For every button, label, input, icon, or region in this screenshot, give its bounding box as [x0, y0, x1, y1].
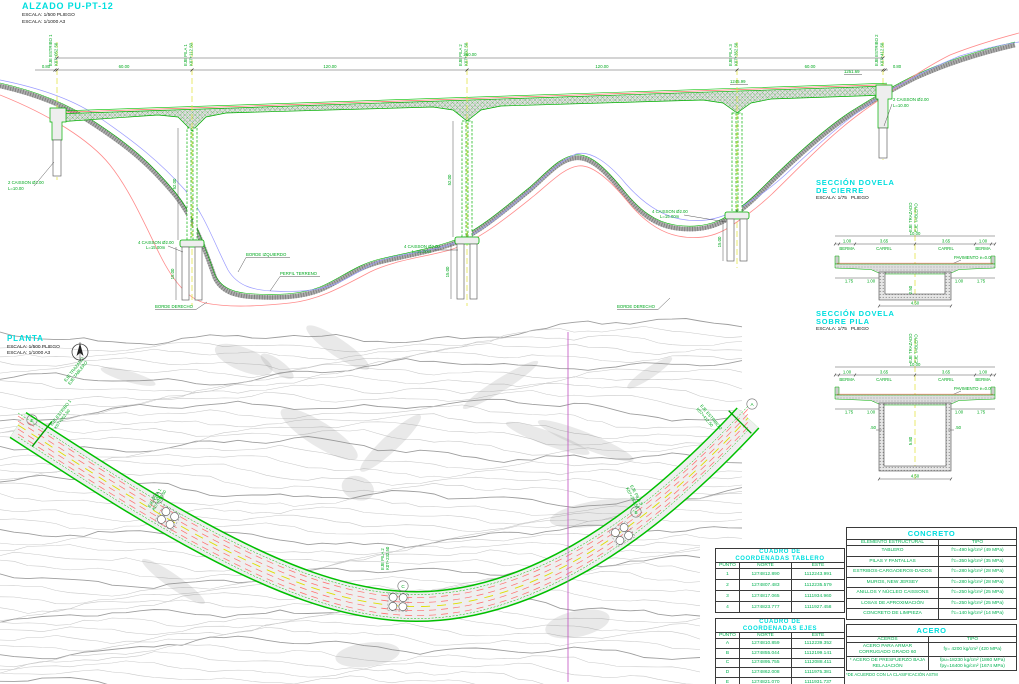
- section-pila-scale: ESCALA: 1/75 PLIEGO: [816, 327, 869, 333]
- table-cell: 1111934.960: [792, 591, 845, 602]
- eje-tablero-label: EJE TABLERO: [914, 203, 919, 232]
- elevation-scale-1: ESCALA: 1/500 PLIEGO: [22, 13, 75, 19]
- borde-derecho-label: BORDE DERECHO: [617, 304, 656, 309]
- dim-label: 4.50: [911, 474, 920, 479]
- north-arrow-icon: [72, 342, 88, 362]
- table-cell: 2: [716, 580, 740, 591]
- concreto-table: CONCRETO ELEMENTO ESTRUCTURAL TIPO TABLE…: [846, 527, 1017, 620]
- acero-footnote: *DE ACUERDO CON LA CLASIFICACIÓN ASTM: [846, 672, 938, 677]
- table-cell: CONCRETO DE LIMPIEZA: [847, 609, 939, 620]
- perfil-terreno-label: PERFIL TERRENO: [280, 271, 318, 276]
- pavimento-label: PAVIMENTO e=0.05: [954, 386, 994, 391]
- axis-label: EJE PILA 1: [183, 44, 188, 66]
- table-cell: B: [716, 648, 740, 658]
- dim-label: 3.65: [942, 239, 951, 244]
- dim-label: 120.00: [595, 64, 609, 69]
- table-cell: 1112199.141: [792, 648, 845, 658]
- axis-station: K07+112.50: [189, 42, 194, 66]
- table-cell: 1274862.008: [740, 668, 792, 678]
- lane-label: BERMA: [975, 377, 990, 382]
- dim-label: 1.75: [977, 410, 986, 415]
- table-cell: LOSAS DE APROXIMACIÓN: [847, 598, 939, 609]
- column-header: PUNTO: [716, 633, 740, 639]
- dim-label: 1.00: [843, 239, 852, 244]
- dim-label: 1.00: [955, 279, 964, 284]
- elevation-scale-2: ESCALA: 1/1000 A3: [22, 20, 65, 26]
- table-cell: 1274812.890: [740, 569, 792, 580]
- axis-label: EJE PILA 2: [458, 44, 463, 66]
- dim-label: 60.00: [805, 64, 816, 69]
- point-marker-C: C: [398, 581, 408, 591]
- pier3-caisson-dim: 15.00: [717, 236, 722, 247]
- pier-1: 52.00 15.00: [170, 42, 204, 306]
- table-cell: 1112088.411: [792, 658, 845, 668]
- dim-label: 60.00: [119, 64, 130, 69]
- drawing-sheet: 52.00 15.00 52.00 15.00 15.00: [0, 0, 1019, 684]
- eje-tablero-label: EJE TABLERO: [914, 334, 919, 363]
- table-cell: f'c=250 kg/cm² (25 MPa): [939, 588, 1017, 599]
- section-cierre-scale: ESCALA: 1/75 PLIEGO: [816, 196, 869, 202]
- depth-dim: 2.50: [908, 285, 913, 294]
- table-cell: f'c=280 kg/cm² (28 MPa): [939, 577, 1017, 588]
- dim-label: 3.65: [942, 370, 951, 375]
- section-pila: EJE TRAZADO EJE TABLERO 10.00 1.00 3.65 …: [813, 337, 1019, 487]
- table-cell: 4: [716, 602, 740, 613]
- axis-station: K07+232.50: [464, 42, 469, 66]
- table-row: LOSAS DE APROXIMACIÓNf'c=250 kg/cm² (25 …: [847, 598, 1017, 609]
- eje-trazado-label: EJE TRAZADO: [908, 333, 913, 363]
- dim-label: 1.00: [955, 410, 964, 415]
- table-cell: 1274855.044: [740, 648, 792, 658]
- wall-dim: .50: [955, 425, 962, 430]
- lane-label: BERMA: [839, 377, 854, 382]
- dim-label: 1.75: [845, 279, 854, 284]
- pier2-height-dim: 52.00: [447, 174, 452, 185]
- table-cell: 3: [716, 591, 740, 602]
- table-cell: f'c=350 kg/cm² (35 MPa): [939, 556, 1017, 567]
- table-cell: 1274810.859: [740, 639, 792, 649]
- elevation-title: ALZADO PU-PT-12: [22, 1, 114, 11]
- axis-station: K07+232.50: [385, 546, 390, 570]
- table-cell: 1274807.483: [740, 580, 792, 591]
- pier-3: 15.00: [717, 42, 749, 268]
- column-header: PUNTO: [716, 563, 740, 569]
- estribo-1: [50, 108, 66, 176]
- table-cell: TABLERO: [847, 546, 939, 557]
- dim-label: 0.80: [893, 64, 902, 69]
- pier2-caisson-dim: 15.00: [445, 266, 450, 277]
- borde-derecho-label: BORDE DERECHO: [155, 304, 194, 309]
- caisson-label: L=10.00: [893, 103, 909, 108]
- table-row: D1274862.0081111975.381: [716, 668, 845, 678]
- svg-text:E: E: [30, 418, 33, 423]
- dim-label: 120.00: [323, 64, 337, 69]
- table-row: A1274810.8591112239.352: [716, 639, 845, 649]
- caisson-label: 2 CAISSON Ø2.00: [893, 97, 929, 102]
- dim-label: 1.00: [979, 370, 988, 375]
- lane-label: CARRIL: [938, 377, 954, 382]
- table-cell: 1112243.991: [792, 569, 845, 580]
- plan-scale-1: ESCALA: 1/500 PLIEGO: [7, 345, 60, 351]
- table-cell: A: [716, 639, 740, 649]
- table-cell: 1274895.755: [740, 658, 792, 668]
- table-title: CONCRETO: [847, 528, 1017, 540]
- table-cell: 1111931.737: [792, 678, 845, 684]
- table-cell: 1274821.070: [740, 678, 792, 684]
- spot-level: 1251.69: [844, 69, 860, 74]
- section-cierre: EJE TRAZADO EJE TABLERO 10.00 1.00 3.65 …: [813, 206, 1019, 314]
- caisson-label: L=15.00m: [412, 249, 432, 254]
- table-row: 21274807.4831112235.579: [716, 580, 845, 591]
- plan-view: A B C D E EJE ESTRIBO 1 K07+052.50 EJE P…: [0, 330, 750, 684]
- table-row: ANILLOS Y NÚCLEO CAISSONSf'c=250 kg/cm² …: [847, 588, 1017, 599]
- plan-scale-2: ESCALA: 1/1000 A3: [7, 351, 50, 357]
- section-cierre-title: SECCIÓN DOVELA DE CIERRE: [816, 179, 895, 195]
- table-cell: C: [716, 658, 740, 668]
- table-cell: E: [716, 678, 740, 684]
- table-row: 41274823.7771111927.458: [716, 602, 845, 613]
- lane-label: CARRIL: [938, 246, 954, 251]
- table-cell: ANILLOS Y NÚCLEO CAISSONS: [847, 588, 939, 599]
- table-row: PILAS Y PANTALLASf'c=350 kg/cm² (35 MPa): [847, 556, 1017, 567]
- axis-label: EJE PILA 3: [728, 44, 733, 66]
- coordenadas-ejes-table: CUADRO DE COORDENADAS EJES PUNTO NORTE E…: [715, 618, 845, 684]
- dim-label: 3.65: [880, 239, 889, 244]
- dim-label: 1.75: [845, 410, 854, 415]
- axis-label: EJE ESTRIBO 2: [874, 34, 879, 66]
- table-cell: 1111975.381: [792, 668, 845, 678]
- borde-izquierdo-label: BORDE IZQUIERDO: [246, 252, 287, 257]
- dim-label: 1.00: [843, 370, 852, 375]
- plan-title: PLANTA: [7, 334, 44, 343]
- table-row: C1274895.7551112088.411: [716, 658, 845, 668]
- table-row: MUROS, NEW JERSEYf'c=280 kg/cm² (28 MPa): [847, 577, 1017, 588]
- table-title: CUADRO DE COORDENADAS TABLERO: [716, 549, 845, 563]
- axis-station: K07+052.50: [54, 42, 59, 66]
- coordenadas-tablero-table: CUADRO DE COORDENADAS TABLERO PUNTO NORT…: [715, 548, 845, 613]
- table-row: CONCRETO DE LIMPIEZAf'c=140 kg/cm² (14 M…: [847, 609, 1017, 620]
- table-cell: 1274823.777: [740, 602, 792, 613]
- table-row: 31274817.0651111934.960: [716, 591, 845, 602]
- table-cell: D: [716, 668, 740, 678]
- dim-label: 1.00: [867, 410, 876, 415]
- table-cell: MUROS, NEW JERSEY: [847, 577, 939, 588]
- axis-label: EJE ESTRIBO 1: [48, 34, 53, 66]
- dim-label: 1.00: [867, 279, 876, 284]
- pier1-height-dim: 52.00: [172, 178, 177, 189]
- table-cell: 1111927.458: [792, 602, 845, 613]
- table-cell: 1: [716, 569, 740, 580]
- table-cell: 1112235.579: [792, 580, 845, 591]
- lane-label: CARRIL: [876, 377, 892, 382]
- table-cell: f'c=140 kg/cm² (14 MPa): [939, 609, 1017, 620]
- table-cell: ACERO PARA ARMAR CORRUGADO GRADO 60: [847, 643, 929, 657]
- estribo-2: [876, 85, 892, 158]
- table-title: CUADRO DE COORDENADAS EJES: [716, 619, 845, 633]
- caisson-label: L=15.00m: [660, 214, 680, 219]
- caisson-label: L=10.00: [8, 186, 24, 191]
- table-cell: f'c=490 kg/cm² (49 MPa): [939, 546, 1017, 557]
- lane-label: CARRIL: [876, 246, 892, 251]
- dim-label: 1.00: [979, 239, 988, 244]
- table-cell: ESTRIBOS-CARGADEROS-DADOS: [847, 567, 939, 578]
- caisson-label: L=15.00m: [146, 245, 166, 250]
- dim-label: 10.00: [910, 231, 921, 236]
- dim-label: 3.65: [880, 370, 889, 375]
- wall-dim: .50: [870, 425, 877, 430]
- lane-label: BERMA: [975, 246, 990, 251]
- table-cell: PILAS Y PANTALLAS: [847, 556, 939, 567]
- table-cell: fpu=18230 kg/cm² (1860 MPa) fpy=16400 kg…: [929, 657, 1017, 671]
- depth-dim: 5.80: [908, 436, 913, 445]
- table-cell: fy= 4200 kg/cm² (420 MPa): [929, 643, 1017, 657]
- lane-label: BERMA: [839, 246, 854, 251]
- dim-label: 4.50: [911, 301, 920, 306]
- svg-text:B: B: [634, 510, 637, 515]
- table-row: 11274812.8901112243.991: [716, 569, 845, 580]
- svg-text:A: A: [750, 402, 754, 407]
- dim-label: 10.00: [910, 362, 921, 367]
- table-cell: f'c=280 kg/cm² (28 MPa): [939, 567, 1017, 578]
- pier1-caisson-dim: 15.00: [170, 268, 175, 279]
- point-marker-A: A: [747, 399, 757, 409]
- table-cell: 1274817.065: [740, 591, 792, 602]
- acero-table: ACERO ACEROS TIPO ACERO PARA ARMAR CORRU…: [846, 624, 1017, 671]
- table-row: TABLEROf'c=490 kg/cm² (49 MPa): [847, 546, 1017, 557]
- table-title: ACERO: [847, 625, 1017, 637]
- svg-text:C: C: [401, 584, 405, 589]
- table-cell: * ACERO DE PRESFUERZO BAJA RELAJACIÓN: [847, 657, 929, 671]
- table-row: ACERO PARA ARMAR CORRUGADO GRADO 60fy= 4…: [847, 643, 1017, 657]
- eje-trazado-label: EJE TRAZADO: [908, 202, 913, 232]
- caisson-label: 2 CAISSON Ø2.00: [8, 180, 44, 185]
- pier-2: 52.00 15.00: [445, 42, 479, 306]
- table-row: B1274855.0441112199.141: [716, 648, 845, 658]
- table-row: E1274821.0701111931.737: [716, 678, 845, 684]
- table-cell: f'c=250 kg/cm² (25 MPa): [939, 598, 1017, 609]
- table-row: ESTRIBOS-CARGADEROS-DADOSf'c=280 kg/cm² …: [847, 567, 1017, 578]
- axis-station: K07+412.50: [880, 42, 885, 66]
- table-cell: 1112239.352: [792, 639, 845, 649]
- table-row: * ACERO DE PRESFUERZO BAJA RELAJACIÓNfpu…: [847, 657, 1017, 671]
- elevation-station-labels: EJE ESTRIBO 1 K07+052.50 EJE PILA 1 K07+…: [48, 34, 885, 66]
- section-pila-title: SECCIÓN DOVELA SOBRE PILA: [816, 310, 895, 326]
- dim-label: 1.75: [977, 279, 986, 284]
- spot-level: 1245.99: [730, 79, 746, 84]
- pavimento-label: PAVIMENTO e=0.05: [954, 255, 994, 260]
- axis-station: K07+352.50: [734, 42, 739, 66]
